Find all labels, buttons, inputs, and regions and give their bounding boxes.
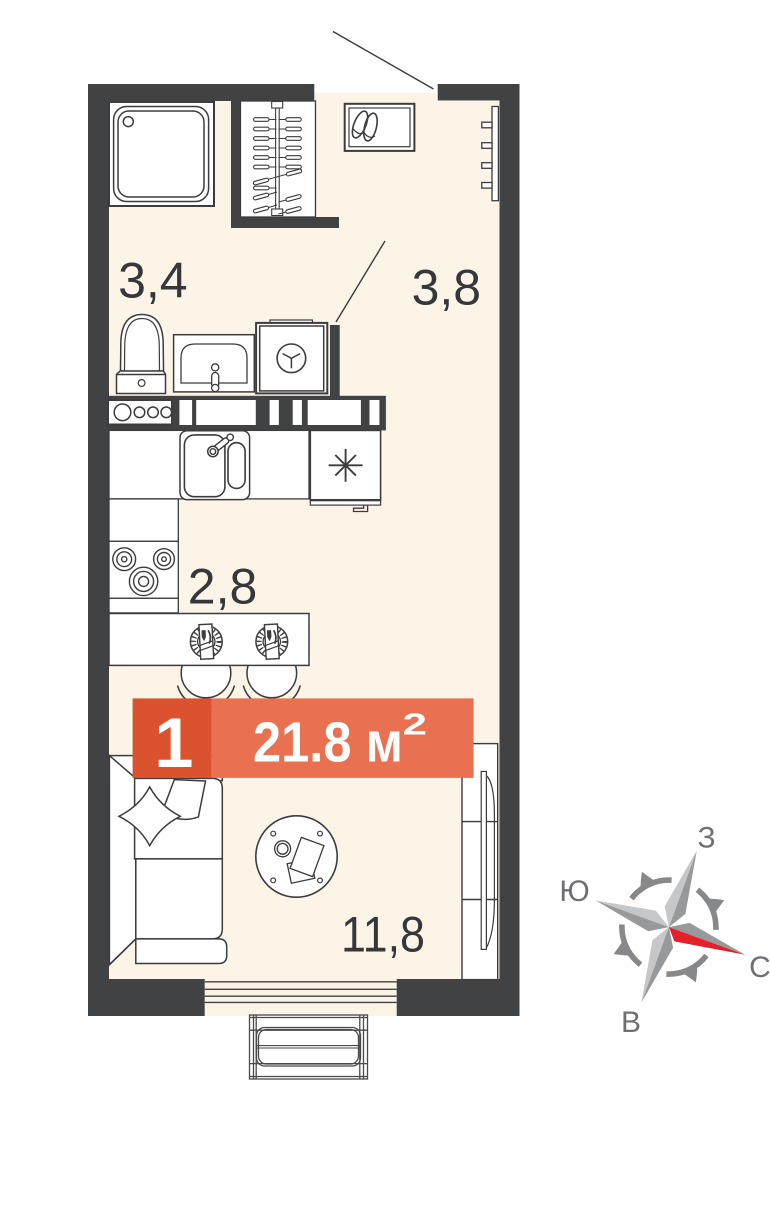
svg-text:2: 2 (403, 707, 428, 742)
svg-text:21.8 м: 21.8 м (253, 711, 403, 775)
svg-text:3,4: 3,4 (118, 253, 188, 309)
svg-text:З: З (697, 822, 715, 855)
svg-text:В: В (621, 1006, 641, 1039)
svg-text:11,8: 11,8 (341, 907, 425, 963)
svg-text:3,8: 3,8 (412, 260, 482, 316)
svg-text:1: 1 (154, 703, 193, 782)
svg-text:Ю: Ю (559, 875, 589, 908)
svg-text:2,8: 2,8 (188, 559, 258, 615)
svg-text:С: С (749, 951, 770, 984)
